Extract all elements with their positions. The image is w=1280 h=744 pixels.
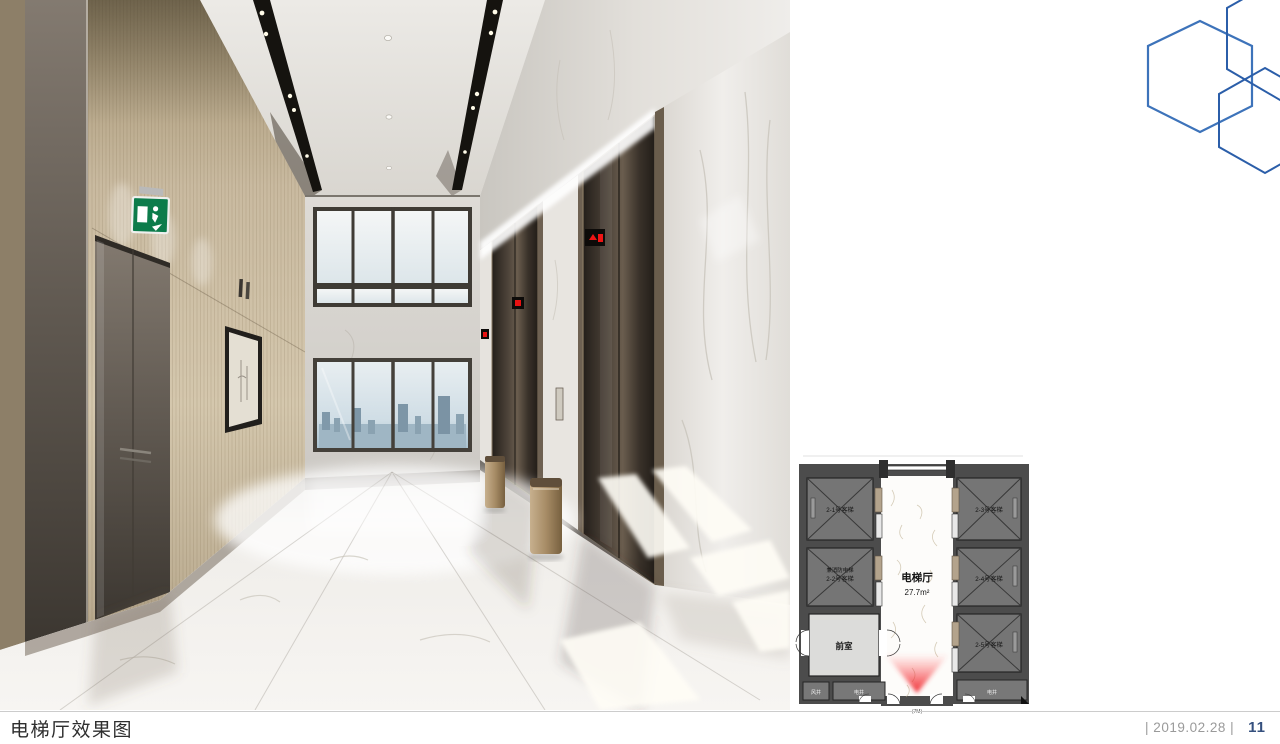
presentation-slide: 2-1号客梯 兼消防电梯 2-2号客梯 前室 风井 电井 电梯厅 27.7m² … [0,0,1280,744]
page-number: 11 [1248,719,1266,736]
air-shaft-label: 风井 [811,689,821,696]
electric-shaft-label-left: 电井 [854,689,864,696]
elevator-hall-rendering [0,0,790,710]
hexagon-outline-clipped [1227,0,1280,100]
footer-divider [0,711,1280,712]
hall-area-label: 27.7m² [905,588,930,597]
marble-pier-far [480,241,492,469]
hall-label: 电梯厅 [901,571,933,584]
left-wood-sliver [0,0,25,650]
elevator-floor-indicator-led-near [585,229,605,246]
metal-door [95,235,170,620]
hexagon-outline-small [1219,68,1280,173]
shaft-label-2-5: 2-5号客梯 [975,641,1003,649]
wall-display-niche [225,326,262,433]
slide-caption: 电梯厅效果图 [10,715,133,742]
floor-plan: 2-1号客梯 兼消防电梯 2-2号客梯 前室 风井 电井 电梯厅 27.7m² … [795,450,1039,716]
back-wall [305,196,480,478]
footer-right: | 2019.02.28 | 11 [1145,719,1266,736]
vestibule-label: 前室 [835,641,853,651]
left-metal-panel [25,0,88,642]
upper-window [313,207,472,307]
lower-window [313,358,472,452]
slide-date: | 2019.02.28 | [1145,720,1234,735]
elevator-floor-indicator-led-far [512,297,524,309]
exit-door-icon [137,206,148,222]
trash-bin-near [528,478,564,561]
elevator-call-panel[interactable] [556,388,563,420]
shaft-label-2-2: 2-2号客梯 [826,575,854,583]
shaft-label-2-4: 2-4号客梯 [975,575,1003,583]
plan-bottom-note: (7M) [912,709,923,715]
shaft-label-fire: 兼消防电梯 [827,566,855,574]
top-window [885,466,949,470]
elevator-floor-indicator-led-farthest [481,329,489,339]
trash-bin-far [484,456,506,513]
hexagon-outline-large [1148,21,1252,132]
shaft-label-2-3: 2-3号客梯 [975,506,1003,514]
electric-shaft-label-right: 电井 [987,689,997,696]
shaft-label-2-1: 2-1号客梯 [826,506,854,514]
